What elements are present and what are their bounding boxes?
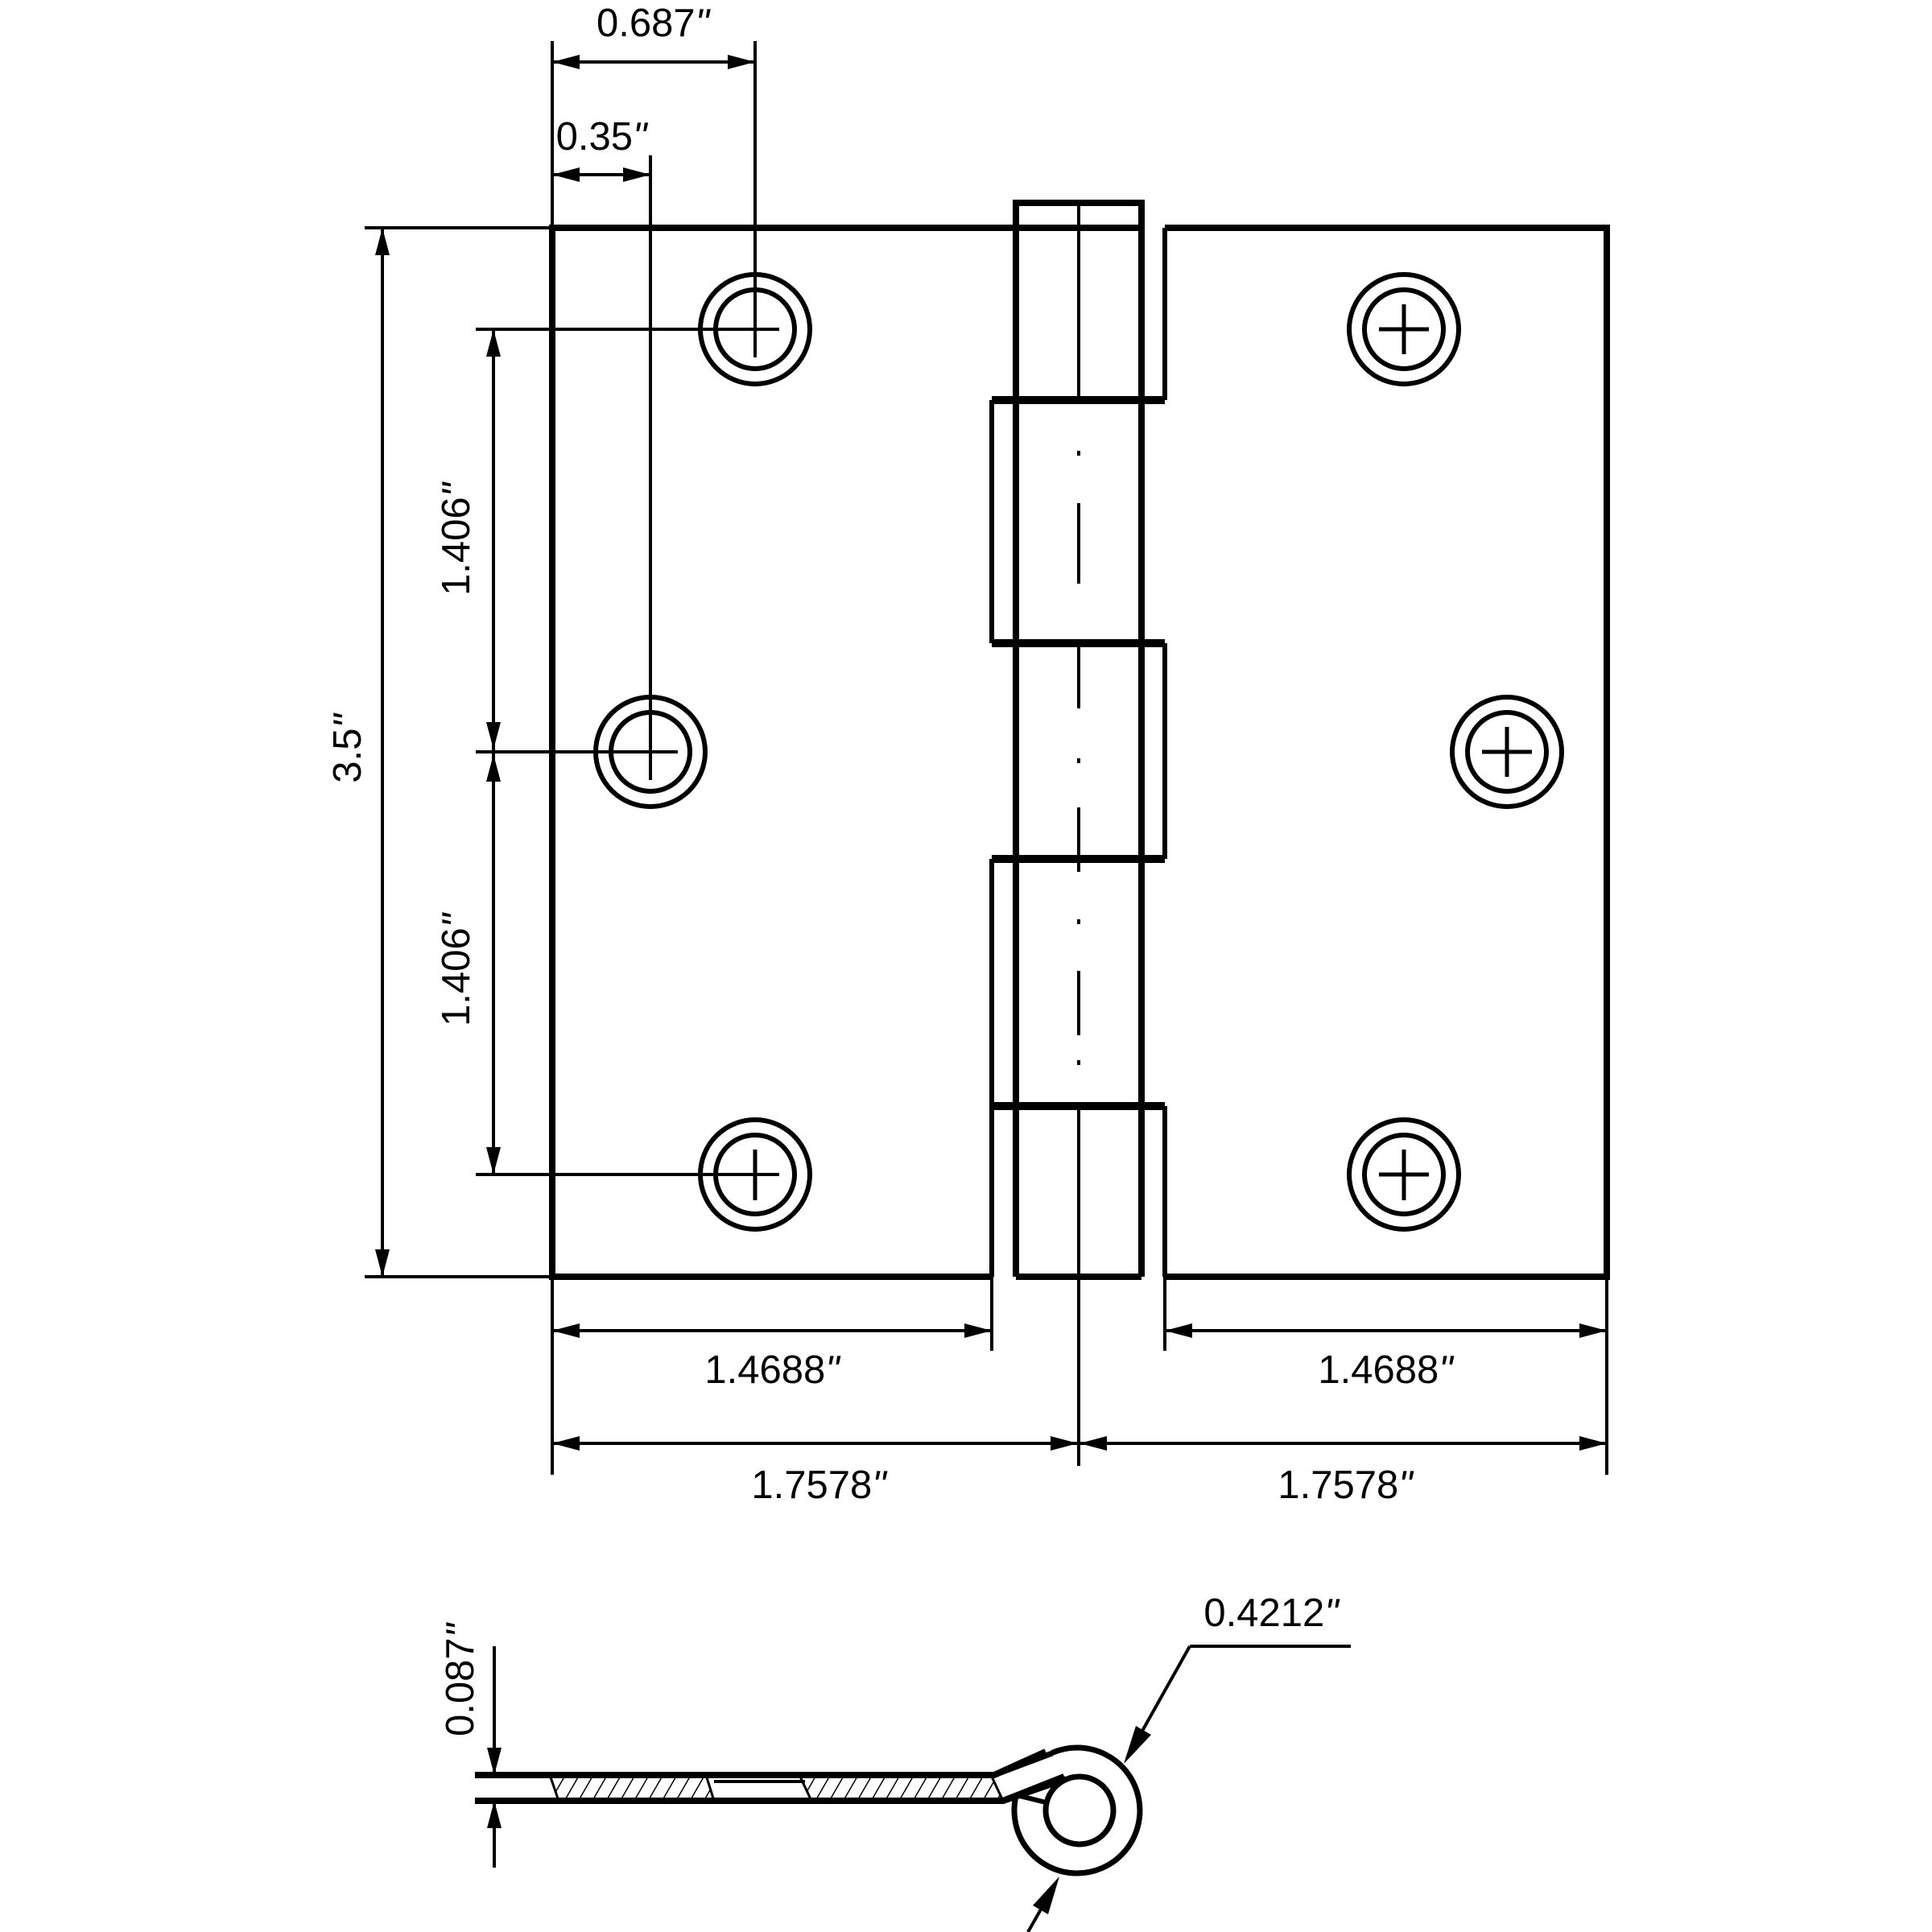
svg-text:1.4688": 1.4688" <box>704 1348 841 1392</box>
svg-text:1.406": 1.406" <box>435 481 478 596</box>
svg-text:0.35": 0.35" <box>556 115 649 159</box>
svg-text:3.5": 3.5" <box>326 712 369 783</box>
svg-text:1.7578": 1.7578" <box>751 1463 888 1507</box>
svg-text:1.4688": 1.4688" <box>1318 1348 1455 1392</box>
svg-text:0.687": 0.687" <box>597 2 712 45</box>
svg-text:1.7578": 1.7578" <box>1278 1463 1414 1507</box>
svg-text:0.087": 0.087" <box>439 1621 482 1736</box>
svg-text:1.406": 1.406" <box>435 911 478 1026</box>
svg-text:0.4212": 0.4212" <box>1203 1591 1340 1635</box>
